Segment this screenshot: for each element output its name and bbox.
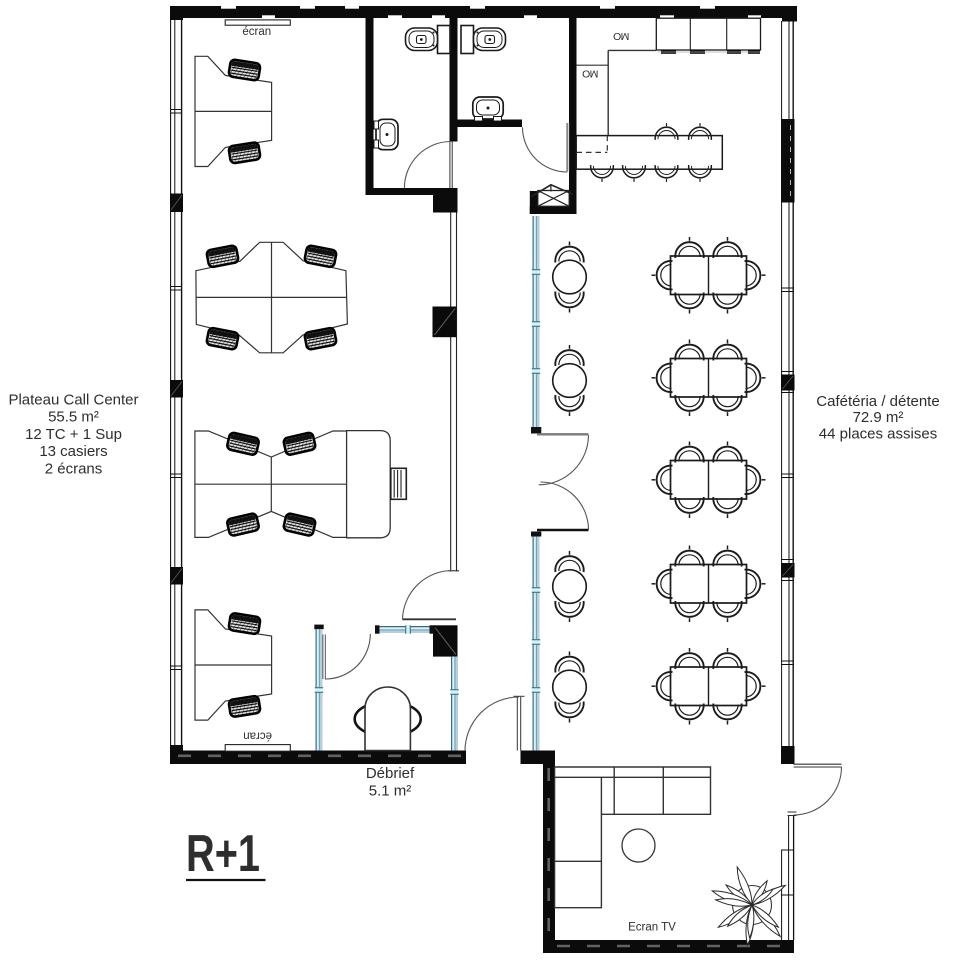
svg-text:Ecran TV: Ecran TV [628,922,676,934]
svg-text:2 écrans: 2 écrans [45,461,103,478]
svg-text:55.5 m²: 55.5 m² [48,408,99,425]
svg-text:Débrief: Débrief [366,765,415,782]
svg-text:Cafétéria / détente: Cafétéria / détente [816,393,939,410]
svg-text:écran: écran [242,26,271,38]
svg-text:5.1 m²: 5.1 m² [369,782,412,799]
svg-text:R+1: R+1 [186,825,260,883]
svg-text:écran: écran [243,730,272,742]
svg-text:Plateau Call Center: Plateau Call Center [8,391,138,408]
svg-text:13 casiers: 13 casiers [39,443,107,460]
svg-text:MO: MO [582,68,598,80]
svg-text:44 places assises: 44 places assises [819,425,937,442]
svg-text:MO: MO [613,30,629,42]
svg-text:72.9 m²: 72.9 m² [853,409,904,426]
svg-text:12 TC + 1 Sup: 12 TC + 1 Sup [25,426,122,443]
